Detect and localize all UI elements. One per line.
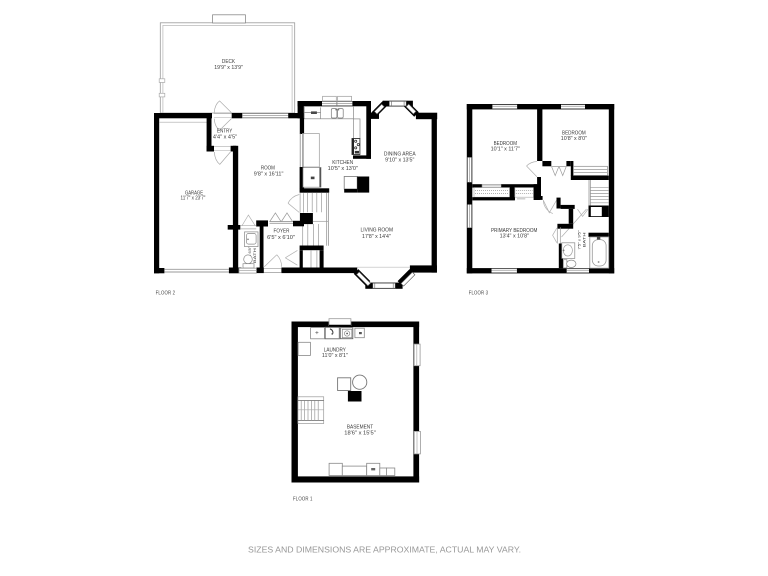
svg-text:FLOOR 1: FLOOR 1 [293,497,313,503]
svg-text:LIVING ROOM: LIVING ROOM [361,228,394,234]
svg-text:FLOOR 2: FLOOR 2 [156,290,176,296]
svg-text:10'8" x 8'0": 10'8" x 8'0" [561,136,588,142]
svg-text:13'4" x 10'8": 13'4" x 10'8" [500,234,530,240]
svg-text:9'10" x 13'5": 9'10" x 13'5" [385,158,414,164]
svg-text:19'9" x 13'9": 19'9" x 13'9" [214,65,243,71]
svg-text:7'5" x 9'5": 7'5" x 9'5" [576,230,581,250]
svg-text:11'0" x 8'1": 11'0" x 8'1" [322,353,348,359]
svg-text:4'4" x 4'5": 4'4" x 4'5" [213,134,238,140]
svg-text:BATH: BATH [252,248,257,263]
svg-text:6'5" x 6'10": 6'5" x 6'10" [267,235,295,241]
svg-text:DINING AREA: DINING AREA [384,152,416,158]
svg-text:9'8" x 16'11": 9'8" x 16'11" [254,172,284,178]
svg-text:BATH: BATH [581,232,586,247]
svg-text:18'6" x 15'5": 18'6" x 15'5" [344,431,376,437]
svg-text:FLOOR 3: FLOOR 3 [469,290,489,296]
svg-text:SIZES AND DIMENSIONS ARE APPRO: SIZES AND DIMENSIONS ARE APPROXIMATE, AC… [248,544,521,554]
svg-text:10'5" x 13'0": 10'5" x 13'0" [328,166,358,172]
svg-text:11'7" x 23'7": 11'7" x 23'7" [181,196,206,202]
svg-text:10'1" x 11'7": 10'1" x 11'7" [491,147,520,153]
svg-text:FOYER: FOYER [274,229,290,235]
svg-text:17'8" x 14'4": 17'8" x 14'4" [362,234,391,240]
